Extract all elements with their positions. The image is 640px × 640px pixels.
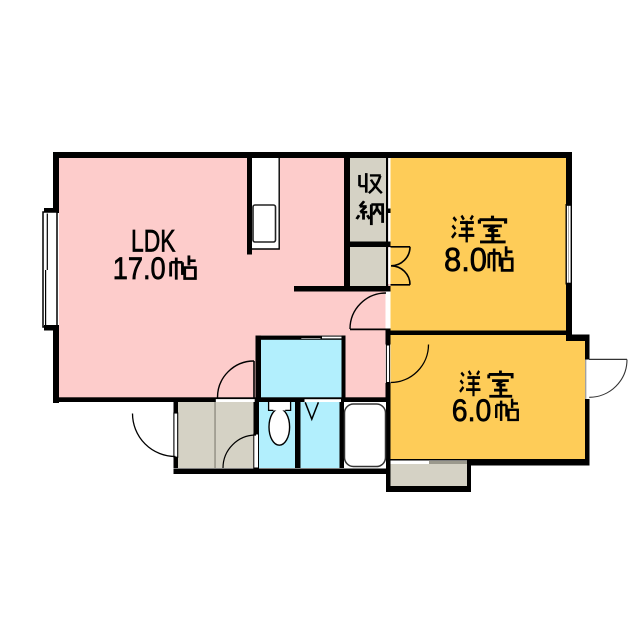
svg-text:8.0: 8.0	[444, 241, 487, 278]
svg-text:17.0: 17.0	[113, 250, 166, 286]
svg-text:6.0: 6.0	[452, 392, 492, 428]
